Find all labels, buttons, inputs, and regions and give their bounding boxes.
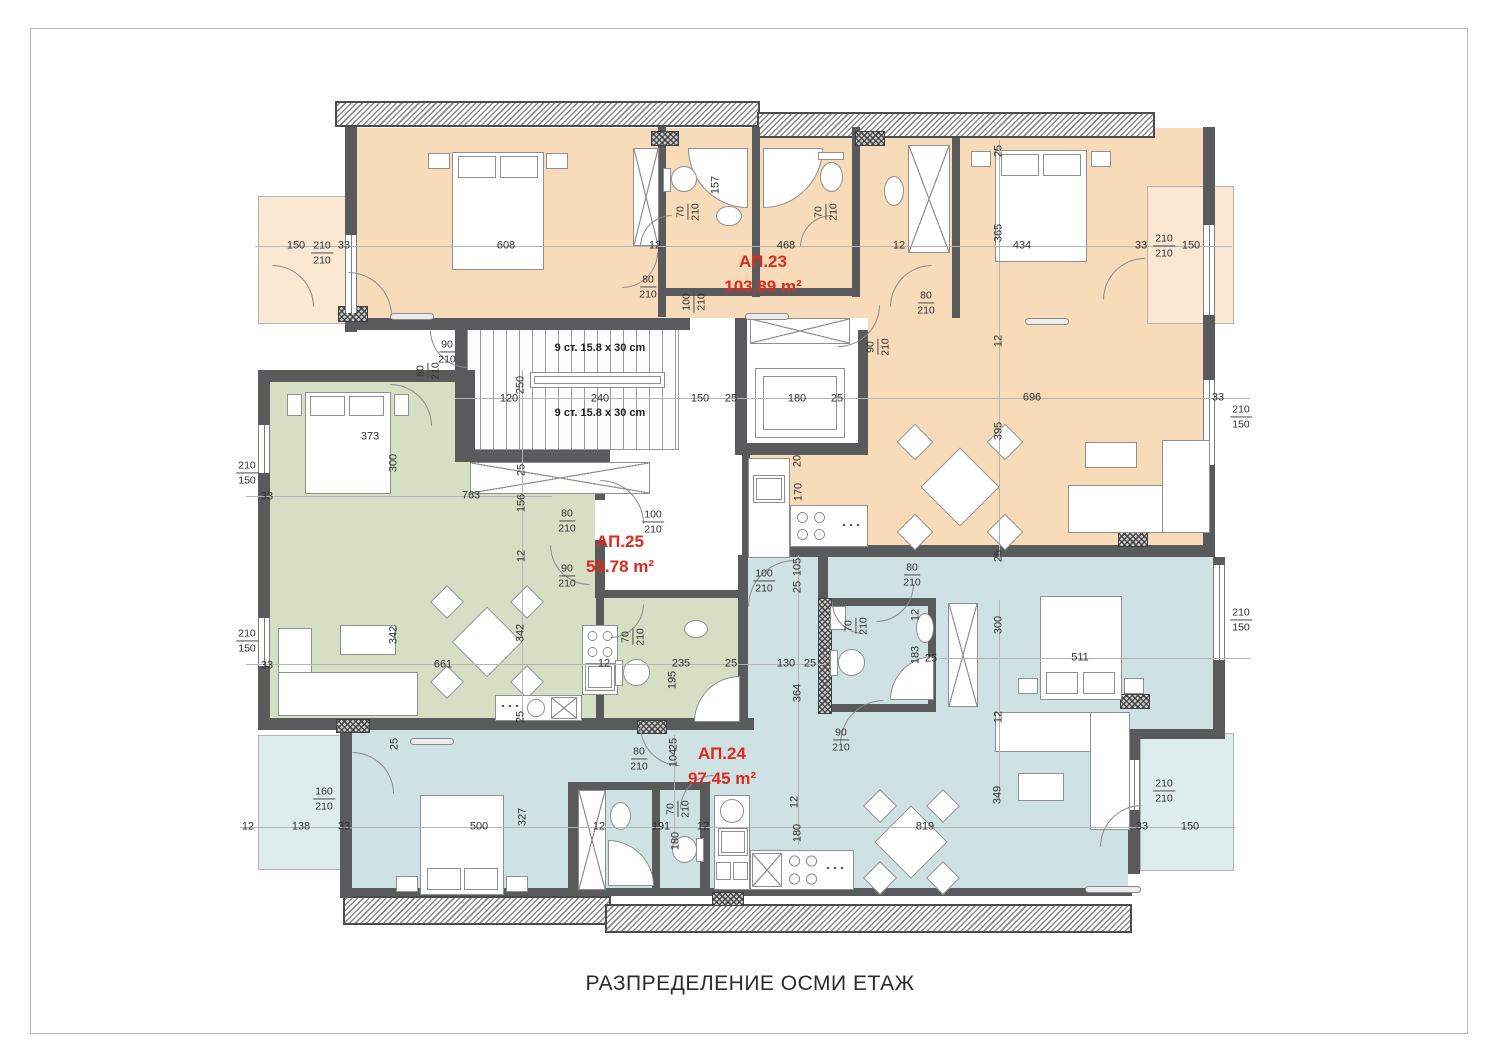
dimension-label: 90210 (864, 338, 891, 356)
dimension-label: 300 (994, 616, 1005, 634)
plan-title: РАЗПРЕДЕЛЕНИЕ ОСМИ ЕТАЖ (0, 972, 1500, 996)
dimension-label: 90210 (832, 726, 850, 753)
pillow (427, 868, 461, 890)
nightstand (1124, 678, 1144, 694)
sink (716, 206, 742, 226)
hatched-wall (605, 904, 1132, 933)
apartment-area: 97.45 m² (688, 767, 756, 792)
wall (952, 138, 960, 318)
dimension-label: 90210 (558, 562, 576, 589)
dimension-label: 12 (697, 822, 709, 833)
pillow (464, 868, 498, 890)
dimension-line (522, 370, 523, 720)
dimension-label: 70210 (842, 617, 869, 635)
dimension-label: 70210 (674, 203, 701, 221)
wall (455, 450, 610, 462)
toilet (671, 166, 697, 192)
dimension-label: 156 (517, 494, 528, 512)
dimension-label: 210150 (236, 459, 258, 486)
apartment-number: АП.23 (724, 250, 802, 275)
dimension-label: 240 (591, 394, 609, 405)
wall-pad (336, 719, 370, 733)
dimension-label: 70210 (812, 203, 839, 221)
dimension-label: 25 (994, 550, 1005, 562)
wall (1128, 729, 1225, 739)
dimension-label: 327 (518, 808, 529, 826)
coffee-table (1085, 442, 1137, 468)
window (258, 425, 270, 473)
dimension-label: 12 (598, 659, 610, 670)
dimension-label: 500 (470, 822, 488, 833)
dimension-label: 12 (893, 241, 905, 252)
dimension-label: 511 (1071, 653, 1089, 664)
pillow (349, 396, 384, 416)
dimension-label: 160210 (313, 785, 335, 812)
dimension-label: 25 (725, 659, 737, 670)
dimension-label: 434 (1013, 241, 1031, 252)
dimension-label: 80210 (903, 561, 921, 588)
dimension-label: 25 (390, 738, 401, 750)
dimension-label: 235 (672, 659, 690, 670)
sink (684, 620, 708, 638)
dimension-label: 210150 (1230, 403, 1252, 430)
dimension-label: 12 (911, 609, 922, 621)
dimension-label: 130 (777, 659, 795, 670)
cooktop-controls (499, 702, 521, 710)
nightstand (396, 876, 418, 892)
dimension-label: 25 (994, 145, 1005, 157)
dimension-label: 12 (593, 822, 605, 833)
pillow (310, 396, 345, 416)
dimension-label: 210210 (1153, 232, 1175, 259)
toilet (818, 152, 844, 160)
dimension-label: 819 (916, 822, 934, 833)
toilet (830, 650, 838, 676)
window (1213, 565, 1225, 660)
dimension-label: 150 (1181, 822, 1199, 833)
radiator (1085, 886, 1141, 893)
window (1203, 225, 1215, 315)
wall (600, 590, 745, 598)
hatched-wall (335, 101, 760, 127)
wall (258, 370, 475, 382)
wall (735, 318, 747, 455)
kitchen-sink (718, 828, 748, 856)
wall-pad (855, 131, 885, 146)
radiator (410, 738, 454, 745)
dimension-line (246, 496, 552, 497)
dimension-label: 365 (994, 224, 1005, 242)
floor-plan-page: { "title": "РАЗПРЕДЕЛЕНИЕ ОСМИ ЕТАЖ", "c… (0, 0, 1500, 1061)
dimension-label: 342 (389, 626, 400, 644)
wall (463, 370, 475, 462)
dimension-label: 150 (1182, 241, 1200, 252)
hatched-wall (343, 896, 611, 925)
dimension-label: 12 (242, 822, 254, 833)
stair-label: 9 ст. 15.8 x 30 cm (555, 342, 646, 354)
dimension-label: 210210 (311, 239, 333, 266)
dimension-label: 250 (516, 376, 527, 394)
dimension-label: 33 (338, 241, 350, 252)
dimension-label: 33 (338, 822, 350, 833)
dimension-label: 150 (287, 241, 305, 252)
stove (786, 852, 820, 888)
dimension-line (940, 658, 1250, 659)
dimension-label: 70210 (619, 628, 646, 646)
toilet (696, 838, 704, 862)
dimension-line (999, 140, 1000, 560)
pillow (1083, 672, 1115, 694)
dimension-line (240, 827, 1235, 828)
kitchen-counter (748, 458, 790, 558)
sink (884, 176, 904, 206)
dimension-label: 696 (1023, 393, 1041, 404)
apartment-label-ap23: АП.23 103.89 m² (724, 250, 802, 299)
pillow (458, 156, 496, 178)
toilet (663, 168, 671, 192)
dimension-label: 342 (516, 624, 527, 642)
wall-pad (651, 131, 679, 146)
sofa (1162, 440, 1210, 533)
apartment-number: АП.24 (688, 742, 756, 767)
dimension-label: 763 (462, 491, 480, 502)
dimension-label: 195 (668, 671, 679, 689)
stair-stringer (534, 376, 661, 384)
kitchen-sink (753, 475, 785, 503)
dimension-label: 25 (669, 738, 680, 750)
dimension-label: 80210 (630, 745, 648, 772)
dimension-label: 100210 (753, 567, 775, 594)
wall-pad (712, 892, 744, 906)
dimension-label: 25 (793, 581, 804, 593)
dimension-label: 120 (500, 394, 518, 405)
cabinet (716, 862, 731, 880)
dimension-line (246, 664, 826, 665)
dimension-label: 100210 (680, 291, 707, 313)
nightstand (1091, 151, 1111, 167)
dimension-label: 25 (804, 659, 816, 670)
wardrobe (948, 603, 978, 707)
pillow (500, 156, 538, 178)
dimension-label: 150 (691, 394, 709, 405)
shaft-vent (750, 318, 850, 344)
dimension-label: 191 (652, 822, 670, 833)
dimension-label: 349 (993, 786, 1004, 804)
cooktop-controls (824, 864, 846, 872)
oven (752, 853, 782, 887)
wall (340, 730, 352, 898)
dimension-label: 373 (361, 432, 379, 443)
wall (258, 370, 270, 730)
nightstand (1018, 678, 1038, 694)
dimension-label: 300 (389, 454, 400, 472)
dimension-label: 170 (794, 483, 805, 501)
pillow (1043, 154, 1081, 176)
wall (818, 557, 828, 602)
hatched-wall (757, 112, 1155, 138)
dimension-label: 395 (994, 422, 1005, 440)
nightstand (506, 876, 528, 892)
dimension-label: 12 (517, 550, 528, 562)
wardrobe (578, 790, 606, 890)
dimension-label: 25 (831, 394, 843, 405)
dimension-label: 12 (649, 241, 661, 252)
wall-pad (1118, 531, 1148, 547)
cabinet (733, 862, 748, 880)
apartment-area: 55.78 m² (586, 555, 654, 580)
dimension-label: 25 (725, 394, 737, 405)
dimension-label: 80210 (558, 507, 576, 534)
stair-label: 9 ст. 15.8 x 30 cm (555, 407, 646, 419)
radiator (745, 313, 789, 320)
toilet (838, 649, 865, 676)
dimension-label: 100210 (642, 508, 664, 535)
dimension-label: 180 (671, 832, 682, 850)
sink (610, 802, 631, 830)
dimension-label: 33 (261, 661, 273, 672)
coffee-table (1018, 773, 1064, 801)
wall-pad (1120, 694, 1150, 709)
dimension-label: 33 (1135, 241, 1147, 252)
dimension-label: 25 (925, 654, 937, 665)
dimension-line (255, 246, 1232, 247)
dimension-label: 364 (793, 684, 804, 702)
dimension-label: 12 (994, 335, 1005, 347)
nightstand (971, 151, 991, 167)
sofa (278, 672, 418, 716)
dimension-label: 80210 (414, 362, 441, 380)
dimension-label: 661 (434, 660, 452, 671)
wall (568, 788, 578, 893)
dimension-label: 180 (788, 394, 806, 405)
pillow (1001, 154, 1039, 176)
dimension-label: 80210 (917, 289, 935, 316)
nightstand (428, 153, 450, 169)
dimension-label: 183 (911, 646, 922, 664)
dimension-label: 20 (793, 455, 804, 467)
dimension-label: 25 (517, 464, 528, 476)
dimension-label: 33 (1212, 393, 1224, 404)
dimension-label: 33 (261, 492, 273, 503)
dimension-label: 210210 (1153, 777, 1175, 804)
dimension-label: 70210 (664, 800, 691, 818)
wall (852, 127, 860, 297)
dimension-label: 157 (711, 176, 722, 194)
dimension-label: 33 (1136, 822, 1148, 833)
dimension-label: 180 (793, 824, 804, 842)
dimension-label: 468 (777, 241, 795, 252)
dimension-line (455, 398, 1250, 399)
dimension-label: 608 (497, 241, 515, 252)
pillow (1046, 672, 1078, 694)
nightstand (287, 394, 302, 416)
apartment-area: 103.89 m² (724, 275, 802, 300)
dimension-label: 104 (669, 749, 680, 767)
oven (551, 697, 577, 719)
wall (735, 443, 868, 455)
dimension-label: 80210 (639, 273, 657, 300)
apartment-label-ap25: АП.25 55.78 m² (586, 530, 654, 579)
apartment-label-ap24: АП.24 97.45 m² (688, 742, 756, 791)
burner (527, 699, 545, 717)
radiator (390, 313, 434, 320)
dimension-label: 12 (790, 796, 801, 808)
cooktop-controls (840, 521, 862, 529)
dimension-label: 12 (994, 711, 1005, 723)
burner (720, 799, 744, 823)
radiator (1025, 318, 1069, 325)
nightstand (546, 153, 568, 169)
dimension-label: 25 (516, 711, 527, 723)
dimension-label: 105 (793, 558, 804, 576)
dimension-label: 210150 (1230, 606, 1252, 633)
toilet (820, 162, 843, 192)
wardrobe (908, 145, 950, 253)
dimension-label: 210150 (236, 627, 258, 654)
stove (794, 509, 828, 543)
dimension-label: 138 (292, 822, 310, 833)
